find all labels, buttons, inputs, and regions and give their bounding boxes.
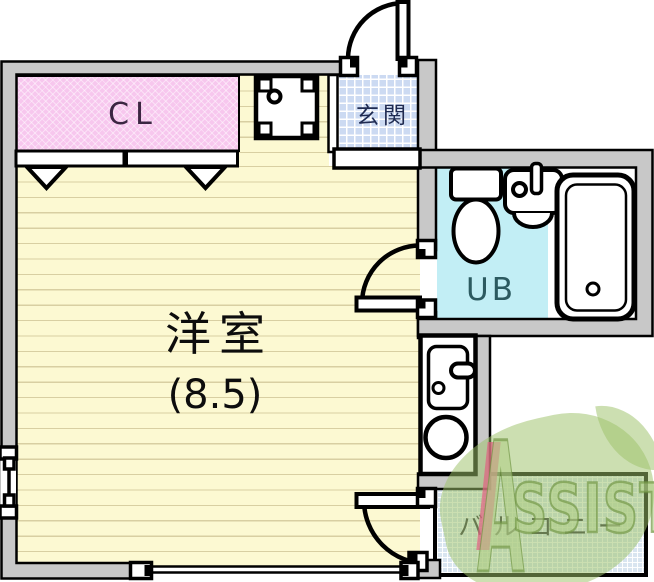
logo-letters-rest: SSIST bbox=[512, 476, 654, 544]
toilet bbox=[451, 169, 501, 263]
entrance-label: 玄関 bbox=[356, 96, 410, 130]
entrance-door bbox=[341, 2, 417, 76]
main-room-size: (8.5) bbox=[168, 372, 263, 418]
balcony-door bbox=[357, 489, 436, 571]
closet-doors bbox=[16, 151, 238, 188]
bath-faucet bbox=[532, 164, 542, 194]
bathtub-drain bbox=[587, 283, 599, 295]
kitchen-drain bbox=[433, 383, 444, 394]
entrance-label-box: 玄関 bbox=[338, 78, 424, 148]
window-bottom bbox=[131, 563, 419, 579]
main-room-label-box: 洋室 (8.5) bbox=[40, 298, 390, 418]
closet-door-mark-right bbox=[186, 167, 225, 188]
bathtub bbox=[557, 175, 634, 319]
unit-bath-label-box: UB bbox=[437, 268, 545, 312]
logo-letters-rest-text: SSIST bbox=[512, 470, 654, 549]
window-left bbox=[0, 447, 17, 518]
washer-pan bbox=[256, 76, 317, 138]
kitchen-burner bbox=[426, 417, 467, 458]
bath-sink bbox=[505, 164, 562, 228]
entrance-step bbox=[334, 149, 420, 168]
main-room-label: 洋室 bbox=[157, 298, 273, 364]
closet-door-mark-left bbox=[27, 167, 66, 188]
closet-label: CL bbox=[108, 97, 158, 132]
entrance-partition-wall bbox=[329, 75, 338, 152]
unit-bath-label: UB bbox=[466, 272, 516, 308]
floorplan: バルコニー bbox=[0, 0, 654, 582]
closet-label-box: CL bbox=[16, 79, 244, 149]
washer-drain bbox=[269, 91, 281, 103]
kitchen-faucet bbox=[451, 364, 475, 378]
